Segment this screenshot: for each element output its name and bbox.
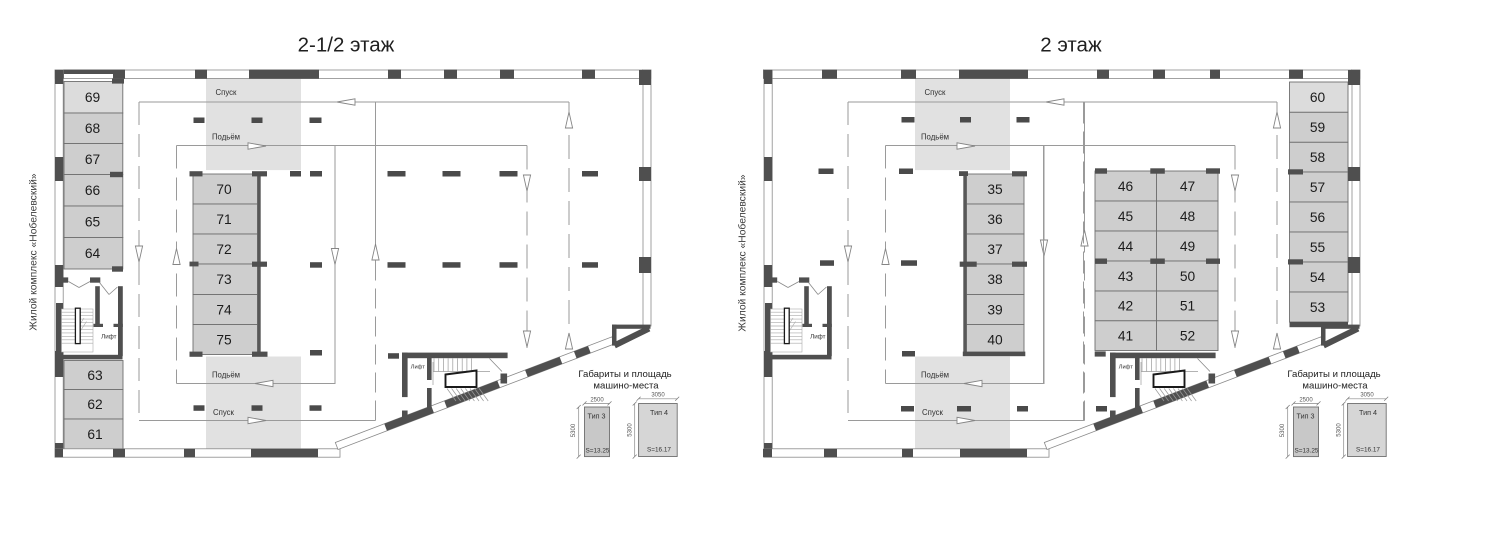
svg-text:51: 51	[1180, 299, 1195, 314]
svg-text:47: 47	[1180, 179, 1195, 194]
svg-text:58: 58	[1310, 150, 1326, 165]
svg-text:5300: 5300	[571, 423, 577, 437]
svg-text:75: 75	[216, 332, 232, 347]
svg-text:61: 61	[87, 427, 102, 442]
svg-text:54: 54	[1310, 270, 1326, 285]
svg-text:Спуск: Спуск	[216, 88, 238, 97]
svg-text:46: 46	[1118, 179, 1134, 194]
svg-text:Спуск: Спуск	[922, 408, 944, 417]
svg-text:Лифт: Лифт	[101, 333, 116, 340]
svg-text:Габариты и площадь: Габариты и площадь	[1287, 369, 1380, 380]
svg-text:57: 57	[1310, 180, 1325, 195]
svg-text:2500: 2500	[1299, 397, 1313, 403]
svg-text:67: 67	[85, 152, 100, 167]
svg-text:Подьём: Подьём	[212, 133, 240, 142]
svg-text:40: 40	[987, 332, 1003, 347]
svg-text:73: 73	[216, 272, 232, 287]
svg-text:Лифт: Лифт	[411, 364, 425, 370]
svg-text:Лифт: Лифт	[1119, 364, 1133, 370]
svg-text:38: 38	[987, 272, 1003, 287]
svg-text:Габариты и площадь: Габариты и площадь	[578, 369, 671, 380]
svg-text:Спуск: Спуск	[925, 88, 947, 97]
svg-text:Жилой комплекс «Нобелевский»: Жилой комплекс «Нобелевский»	[28, 173, 40, 330]
svg-text:3050: 3050	[651, 393, 665, 399]
svg-text:36: 36	[987, 212, 1003, 227]
svg-text:2-1/2 этаж: 2-1/2 этаж	[298, 34, 395, 57]
svg-text:5300: 5300	[1337, 423, 1343, 437]
svg-text:56: 56	[1310, 210, 1326, 225]
svg-text:Подьём: Подьём	[921, 371, 949, 380]
svg-text:S=13.25: S=13.25	[1295, 448, 1319, 455]
svg-text:64: 64	[85, 246, 101, 261]
svg-text:68: 68	[85, 121, 101, 136]
svg-text:S=16.17: S=16.17	[1356, 447, 1380, 454]
svg-text:69: 69	[85, 90, 101, 105]
svg-text:63: 63	[87, 368, 103, 383]
svg-text:45: 45	[1118, 209, 1134, 224]
svg-text:49: 49	[1180, 239, 1196, 254]
svg-text:Лифт: Лифт	[810, 333, 825, 340]
svg-text:65: 65	[85, 215, 101, 230]
svg-text:48: 48	[1180, 209, 1196, 224]
svg-text:41: 41	[1118, 328, 1133, 343]
svg-text:37: 37	[987, 242, 1002, 257]
svg-text:50: 50	[1180, 269, 1196, 284]
svg-text:44: 44	[1118, 239, 1134, 254]
svg-text:Подьём: Подьём	[921, 133, 949, 142]
svg-text:Подьём: Подьём	[212, 371, 240, 380]
svg-text:Тип 4: Тип 4	[1359, 408, 1377, 417]
svg-text:52: 52	[1180, 328, 1195, 343]
svg-text:62: 62	[87, 397, 102, 412]
svg-text:2 этаж: 2 этаж	[1040, 34, 1102, 57]
svg-text:70: 70	[216, 182, 232, 197]
svg-text:74: 74	[216, 302, 232, 317]
svg-text:66: 66	[85, 183, 101, 198]
svg-text:60: 60	[1310, 90, 1326, 105]
svg-text:2500: 2500	[590, 397, 604, 403]
svg-text:S=16.17: S=16.17	[647, 447, 671, 454]
svg-text:Жилой комплекс «Нобелевский»: Жилой комплекс «Нобелевский»	[737, 174, 749, 331]
svg-text:59: 59	[1310, 120, 1326, 135]
svg-text:Тип 4: Тип 4	[650, 408, 668, 417]
svg-text:5300: 5300	[1280, 423, 1286, 437]
svg-text:39: 39	[987, 302, 1003, 317]
svg-text:5300: 5300	[628, 423, 634, 437]
svg-text:43: 43	[1118, 269, 1134, 284]
svg-text:машино-места: машино-места	[1302, 381, 1368, 392]
svg-text:Спуск: Спуск	[213, 408, 235, 417]
svg-text:Тип 3: Тип 3	[1297, 411, 1315, 420]
svg-text:S=13.25: S=13.25	[586, 448, 610, 455]
svg-text:71: 71	[216, 212, 231, 227]
svg-text:53: 53	[1310, 300, 1326, 315]
svg-text:Тип 3: Тип 3	[588, 411, 606, 420]
svg-text:55: 55	[1310, 240, 1326, 255]
svg-text:42: 42	[1118, 299, 1133, 314]
svg-text:машино-места: машино-места	[593, 381, 659, 392]
svg-text:72: 72	[216, 242, 231, 257]
svg-text:3050: 3050	[1360, 393, 1374, 399]
svg-text:35: 35	[987, 182, 1003, 197]
